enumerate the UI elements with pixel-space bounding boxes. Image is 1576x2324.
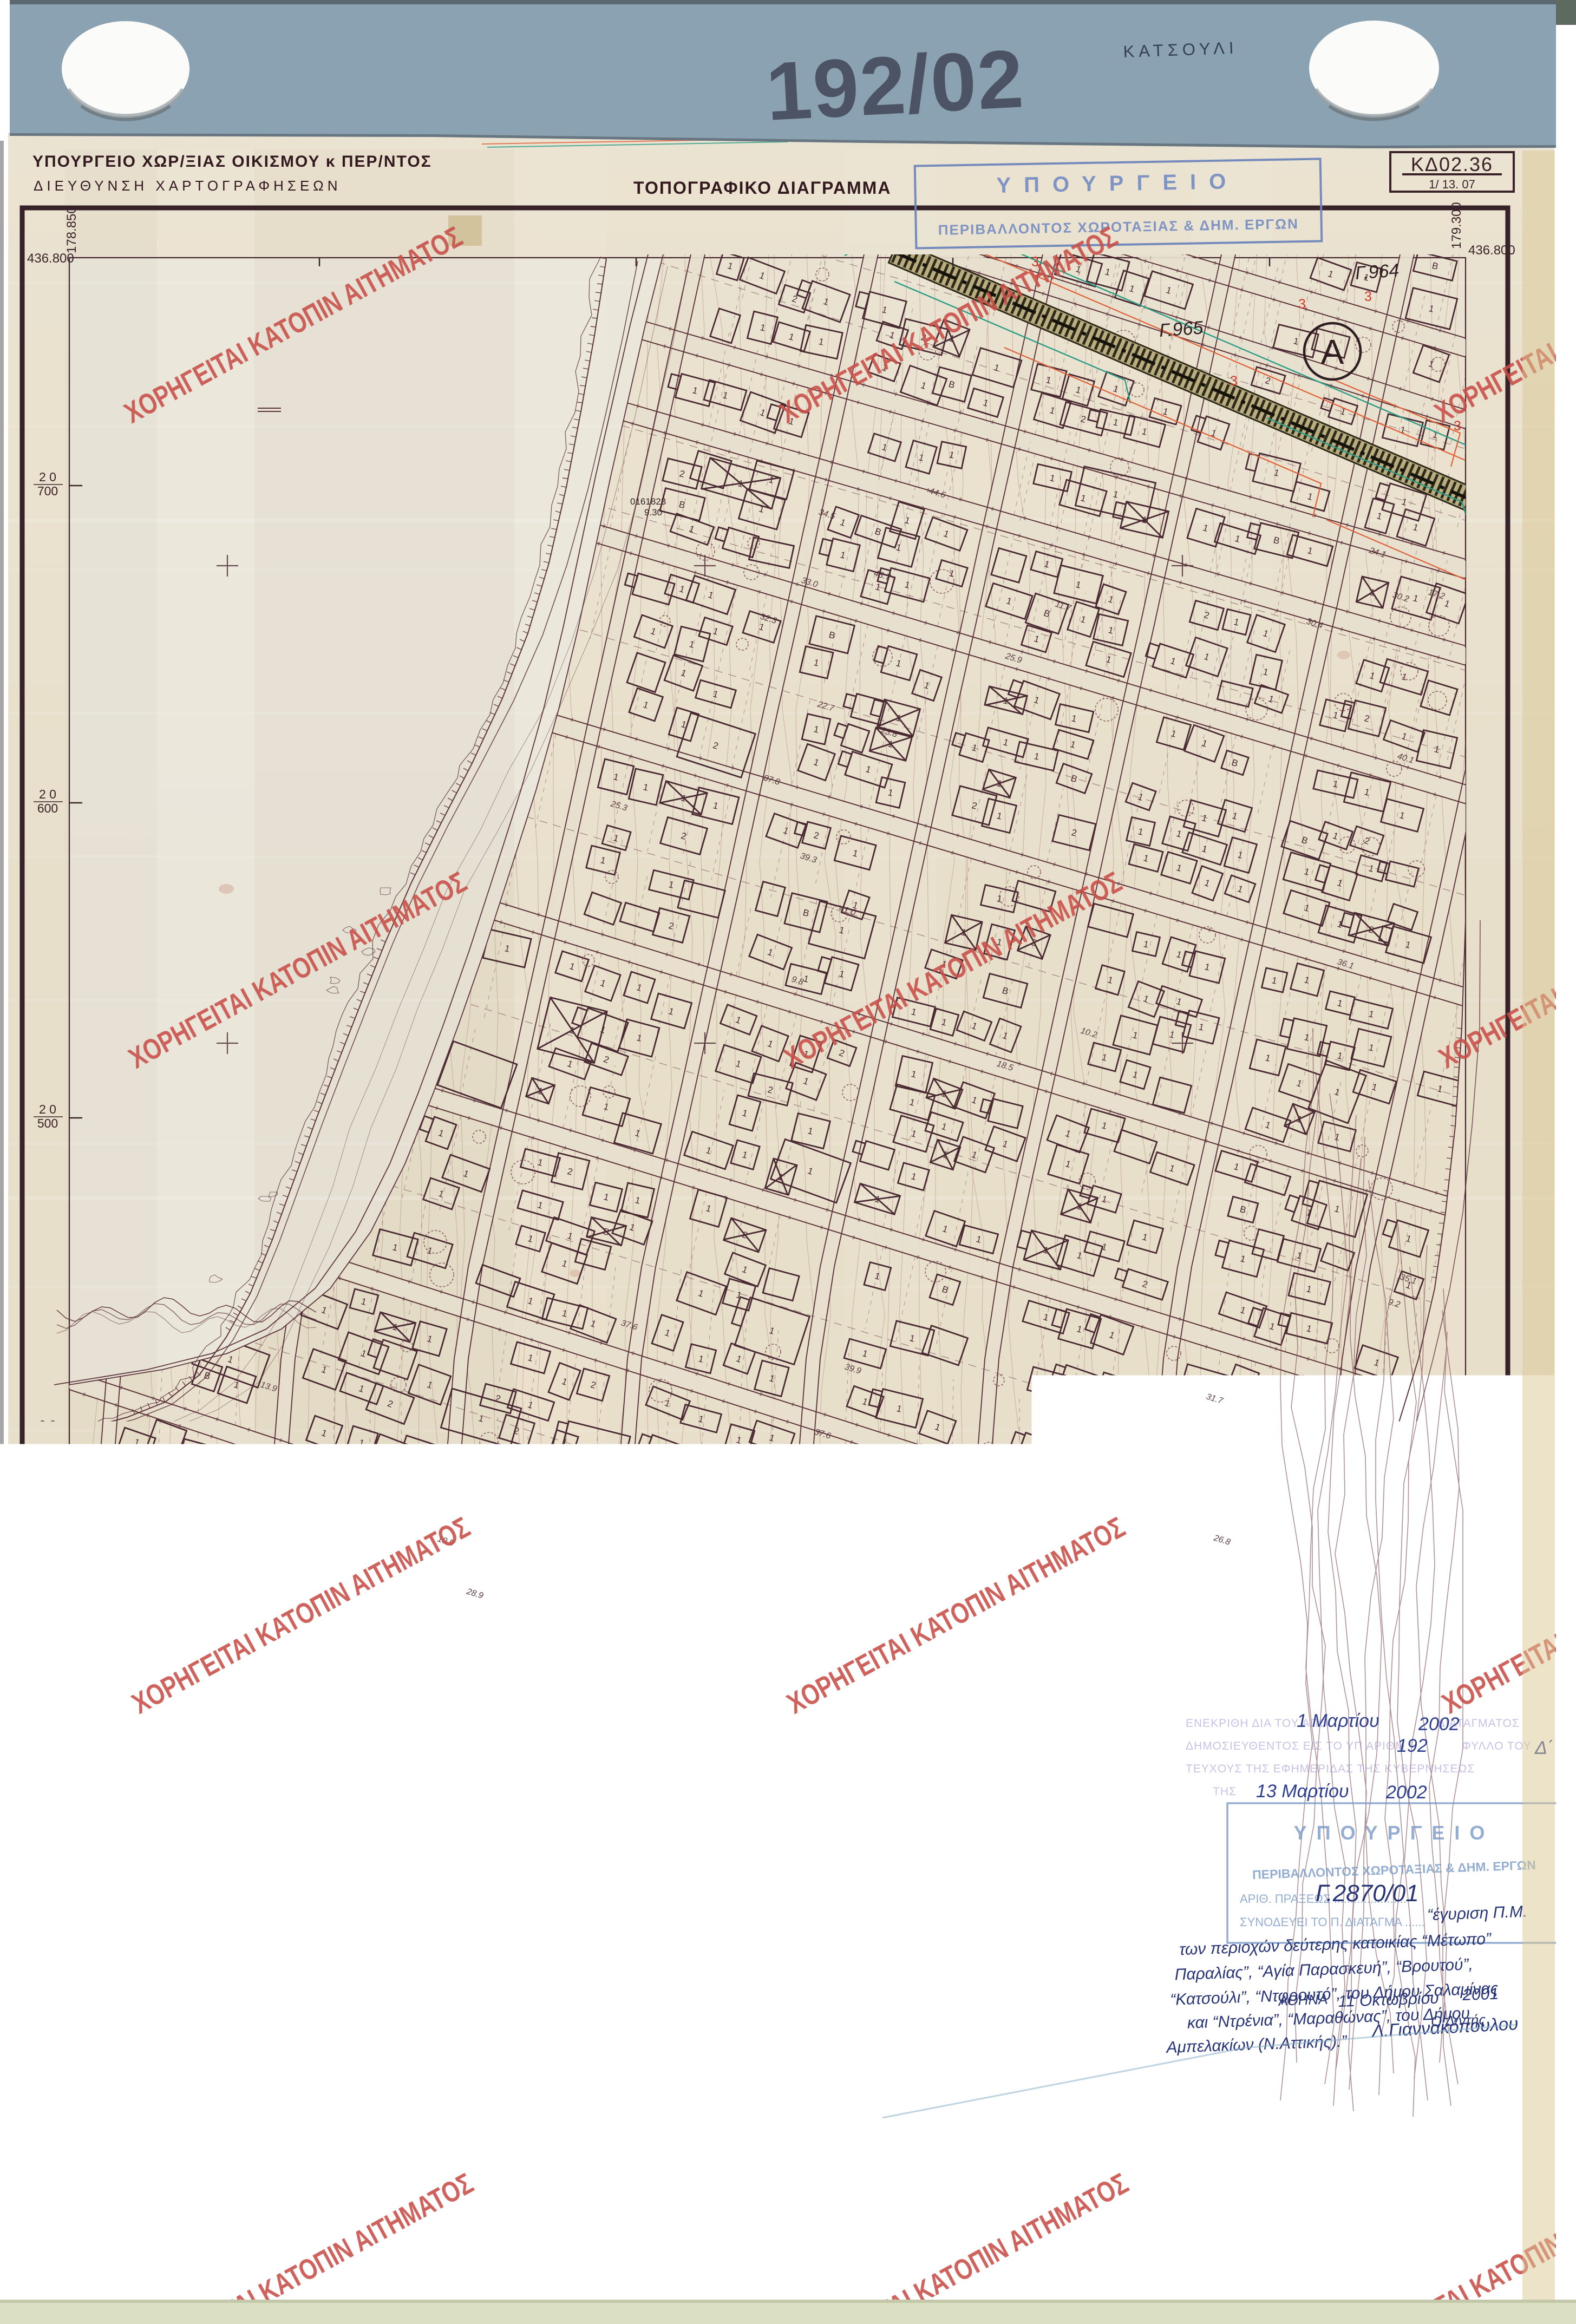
svg-text:11 Οκτωβρίου: 11 Οκτωβρίου — [1338, 1989, 1439, 2011]
svg-text:11.77: 11.77 — [200, 1448, 223, 1458]
svg-text:3: 3 — [1230, 374, 1238, 389]
svg-text:Χρόνος συντάξεως: Χρόνος συντάξεως — [1115, 2257, 1229, 2273]
svg-text:3: 3 — [1364, 289, 1372, 304]
svg-text:2 0: 2 0 — [39, 1734, 56, 1748]
svg-text:700: 700 — [37, 484, 58, 498]
svg-text:ΤΗΣ: ΤΗΣ — [1213, 1785, 1237, 1798]
svg-text:3: 3 — [1298, 297, 1306, 312]
svg-text:436.200: 436.200 — [1475, 2098, 1522, 2112]
svg-text:2 0: 2 0 — [39, 1418, 56, 1432]
svg-text:300: 300 — [37, 1748, 58, 1762]
svg-text:Γ.2870/01: Γ.2870/01 — [1316, 1880, 1419, 1907]
svg-text:436.800: 436.800 — [1468, 243, 1515, 258]
svg-text:Κτίσμα μονόροφον.: Κτίσμα μονόροφον. — [479, 2210, 586, 2224]
svg-text:1: 1 — [1226, 2122, 1239, 2129]
svg-text:1984: 1984 — [1369, 2234, 1412, 2249]
svg-text:1: 1 — [622, 2122, 636, 2129]
svg-text:2 0: 2 0 — [39, 1102, 56, 1116]
svg-text:Κτίσμα διόροφον.: Κτίσμα διόροφον. — [479, 2237, 576, 2251]
svg-text:ΦΥΛΛΟ ΤΟΥ: ΦΥΛΛΟ ΤΟΥ — [1462, 1740, 1532, 1752]
svg-text:ΚΑΤΣΟΥΛΙ: ΚΑΤΣΟΥΛΙ — [1123, 38, 1238, 61]
svg-text:0161823: 0161823 — [630, 496, 666, 507]
svg-text:1 Μαρτίου: 1 Μαρτίου — [1297, 1711, 1379, 1731]
svg-text:200: 200 — [1239, 2103, 1252, 2123]
svg-text:2002: 2002 — [1385, 1782, 1427, 1803]
svg-text:“έγυριση Π.Μ.: “έγυριση Π.Μ. — [1427, 1903, 1528, 1924]
svg-text:ΣΥΝΟΔΕΥΕΙ ΤΟ Π. ΔΙΑΤΑΓΜΑ .....: ΣΥΝΟΔΕΥΕΙ ΤΟ Π. ΔΙΑΤΑΓΜΑ ...... — [1240, 1915, 1425, 1929]
svg-text:ΥΠΟΥΡΓΕΙΟ: ΥΠΟΥΡΓΕΙΟ — [996, 169, 1239, 198]
svg-text:178.850: 178.850 — [71, 2112, 86, 2159]
svg-text:Φωτογραμμετρική: Φωτογραμμετρική — [1325, 2210, 1457, 2225]
svg-text:179.300: 179.300 — [1449, 202, 1464, 249]
svg-text:192: 192 — [1397, 1736, 1428, 1756]
svg-text:500: 500 — [37, 1116, 58, 1130]
svg-text:000: 000 — [635, 2103, 649, 2123]
svg-text:2: 2 — [442, 2237, 448, 2251]
svg-text:0161824: 0161824 — [188, 1436, 224, 1446]
svg-text:2001: 2001 — [1462, 1985, 1499, 2004]
svg-text:Πολυόροφον.: Πολυόροφον. — [479, 2263, 553, 2277]
svg-text:2 0: 2 0 — [39, 470, 56, 484]
svg-text:1/ 13. 07: 1/ 13. 07 — [1429, 178, 1475, 191]
svg-text:A: A — [1321, 332, 1344, 371]
svg-text:Γ.965: Γ.965 — [1159, 317, 1204, 341]
svg-text:ΥΠΟΥΡΓΕΙΟ: ΥΠΟΥΡΓΕΙΟ — [1294, 1822, 1495, 1844]
svg-text:Αρ. 6αυ 53/02: Αρ. 6αυ 53/02 — [923, 2178, 1073, 2204]
svg-text:100: 100 — [952, 2103, 965, 2123]
svg-text:1: 1 — [939, 2122, 952, 2129]
svg-text:Κεντρικός μεσημβρινός λ=0° απ: Κεντρικός μεσημβρινός λ=0° απ΄Αθήνα. — [32, 2226, 280, 2241]
svg-text:ΚΔ02.36: ΚΔ02.36 — [1411, 153, 1493, 175]
svg-text:ΤΟΠΟΓΡΑΦΙΚΟ ΔΙΑΓΡΑΜΜΑ: ΤΟΠΟΓΡΑΦΙΚΟ ΔΙΑΓΡΑΜΜΑ — [633, 178, 891, 198]
svg-text:ΚΛΙΜΑΚΑ 1:1.000: ΚΛΙΜΑΚΑ 1:1.000 — [716, 2177, 838, 2194]
svg-text:ΚΑΤΣΟΥΛΙ: ΚΑΤΣΟΥΛΙ — [1263, 2132, 1370, 2149]
svg-text:200: 200 — [37, 2064, 58, 2078]
svg-text:178.850: 178.850 — [64, 206, 79, 253]
svg-text:2 0: 2 0 — [39, 2050, 56, 2064]
svg-text:192/02: 192/02 — [764, 32, 1026, 138]
svg-text:Εγκάρσια Μερκατορική προβολή 3: Εγκάρσια Μερκατορική προβολή 3°. — [32, 2205, 257, 2221]
svg-text:ΤΕΥΧΟΥΣ ΤΗΣ ΕΦΗΜΕΡΙΔΑΣ ΤΗΣ ΚΥΒ: ΤΕΥΧΟΥΣ ΤΗΣ ΕΦΗΜΕΡΙΔΑΣ ΤΗΣ ΚΥΒΕΡΝΗΣΕΩΣ — [1186, 1763, 1475, 1775]
svg-text:900: 900 — [318, 2103, 332, 2123]
svg-text:ΝΟΜΟΣ: ΝΟΜΟΣ — [1115, 2163, 1187, 2178]
svg-text:13 Μαρτίου: 13 Μαρτίου — [1256, 1781, 1349, 1802]
svg-text:ΔΗΜΟΣΙΕΥΘΕΝΤΟΣ ΕΙΣ ΤΟ ΥΠ ΑΡΙΘΜ: ΔΗΜΟΣΙΕΥΘΕΝΤΟΣ ΕΙΣ ΤΟ ΥΠ ΑΡΙΘΜ — [1186, 1740, 1405, 1752]
svg-text:Γ.964: Γ.964 — [1355, 260, 1400, 284]
svg-text:Φωτοληψία: Φωτοληψία — [1115, 2234, 1183, 2249]
svg-text:ΥΠΟΥΡΓΕΙΟ ΧΩΡ/ΞΙΑΣ ΟΙΚΙΣΜΟΥ: ΥΠΟΥΡΓΕΙΟ ΧΩΡ/ΞΙΑΣ ΟΙΚΙΣΜΟΥ κ ΠΕΡ/ΝΤΟΣ — [32, 153, 432, 171]
svg-text:ΑΤΤΙΚΗΣ: ΑΤΤΙΚΗΣ — [1348, 2163, 1434, 2178]
svg-text:Π: Π — [441, 2264, 449, 2277]
svg-text:0: 0 — [305, 2122, 319, 2129]
svg-text:600: 600 — [37, 801, 58, 815]
svg-text:9.30: 9.30 — [644, 507, 662, 518]
svg-text:2 0: 2 0 — [39, 787, 56, 801]
svg-text:ΑΘΗΝΑ: ΑΘΗΝΑ — [1277, 1991, 1328, 2009]
svg-text:179.300: 179.300 — [1468, 2098, 1482, 2145]
svg-text:ΣΑΛΑΜΙΝΑΣ (΄Αγία Παρασ κευή): ΣΑΛΑΜΙΝΑΣ (΄Αγία Παρασ κευή) — [1269, 2186, 1513, 2201]
svg-text:ΔΙΕΥΘΥΝΣΗ ΧΑΡΤΟΓΡΑΦΗΣΕΩΝ: ΔΙΕΥΘΥΝΣΗ ΧΑΡΤΟΓΡΑΦΗΣΕΩΝ — [34, 178, 342, 194]
svg-text:Ελληνικό DATUM: Ελληνικό DATUM — [32, 2185, 141, 2200]
svg-text:400: 400 — [37, 1432, 58, 1446]
svg-text:Μέθοδος συντάξεως: Μέθοδος συντάξεως — [1115, 2210, 1238, 2225]
svg-text:Οκτώβριος 1984 – Φεβρουάριος: Οκτώβριος 1984 – Φεβρουάριος 1985 — [1277, 2257, 1505, 2273]
